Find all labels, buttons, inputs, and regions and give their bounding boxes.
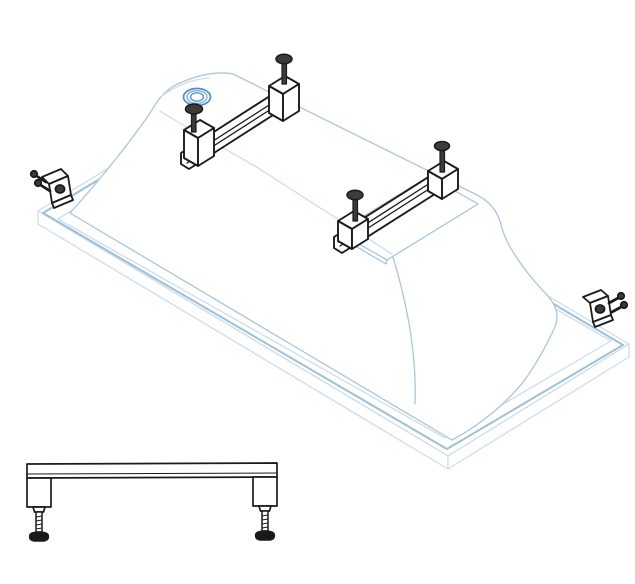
bathtub — [38, 73, 629, 469]
bolt-head — [186, 104, 203, 114]
side-view-leg-frame — [27, 463, 277, 541]
diagram-canvas — [0, 0, 635, 584]
bolt-stem — [440, 149, 445, 172]
adjustable-foot — [30, 532, 49, 541]
leg-right — [253, 477, 277, 540]
leg-left — [27, 478, 51, 541]
bolt-head — [276, 54, 292, 64]
bolt-head — [347, 190, 363, 200]
bracket-hole — [596, 305, 605, 313]
screw-head — [31, 171, 37, 177]
bracket-hole — [56, 185, 65, 193]
wall-anchor-bracket-left — [31, 169, 73, 208]
leg-block — [27, 478, 51, 507]
leg-block — [253, 477, 277, 506]
screw-head — [621, 302, 627, 308]
bolt-head — [435, 142, 450, 151]
adjustable-foot — [256, 531, 275, 540]
bolt-stem — [282, 62, 287, 84]
screw-head — [618, 293, 624, 299]
screw-head — [35, 180, 41, 186]
bolt-stem — [192, 112, 197, 132]
bolt-stem — [353, 198, 358, 221]
installation-diagram — [0, 0, 635, 584]
rail-clamp-left — [184, 120, 214, 166]
isometric-view — [31, 54, 629, 469]
support-rail — [27, 463, 277, 478]
